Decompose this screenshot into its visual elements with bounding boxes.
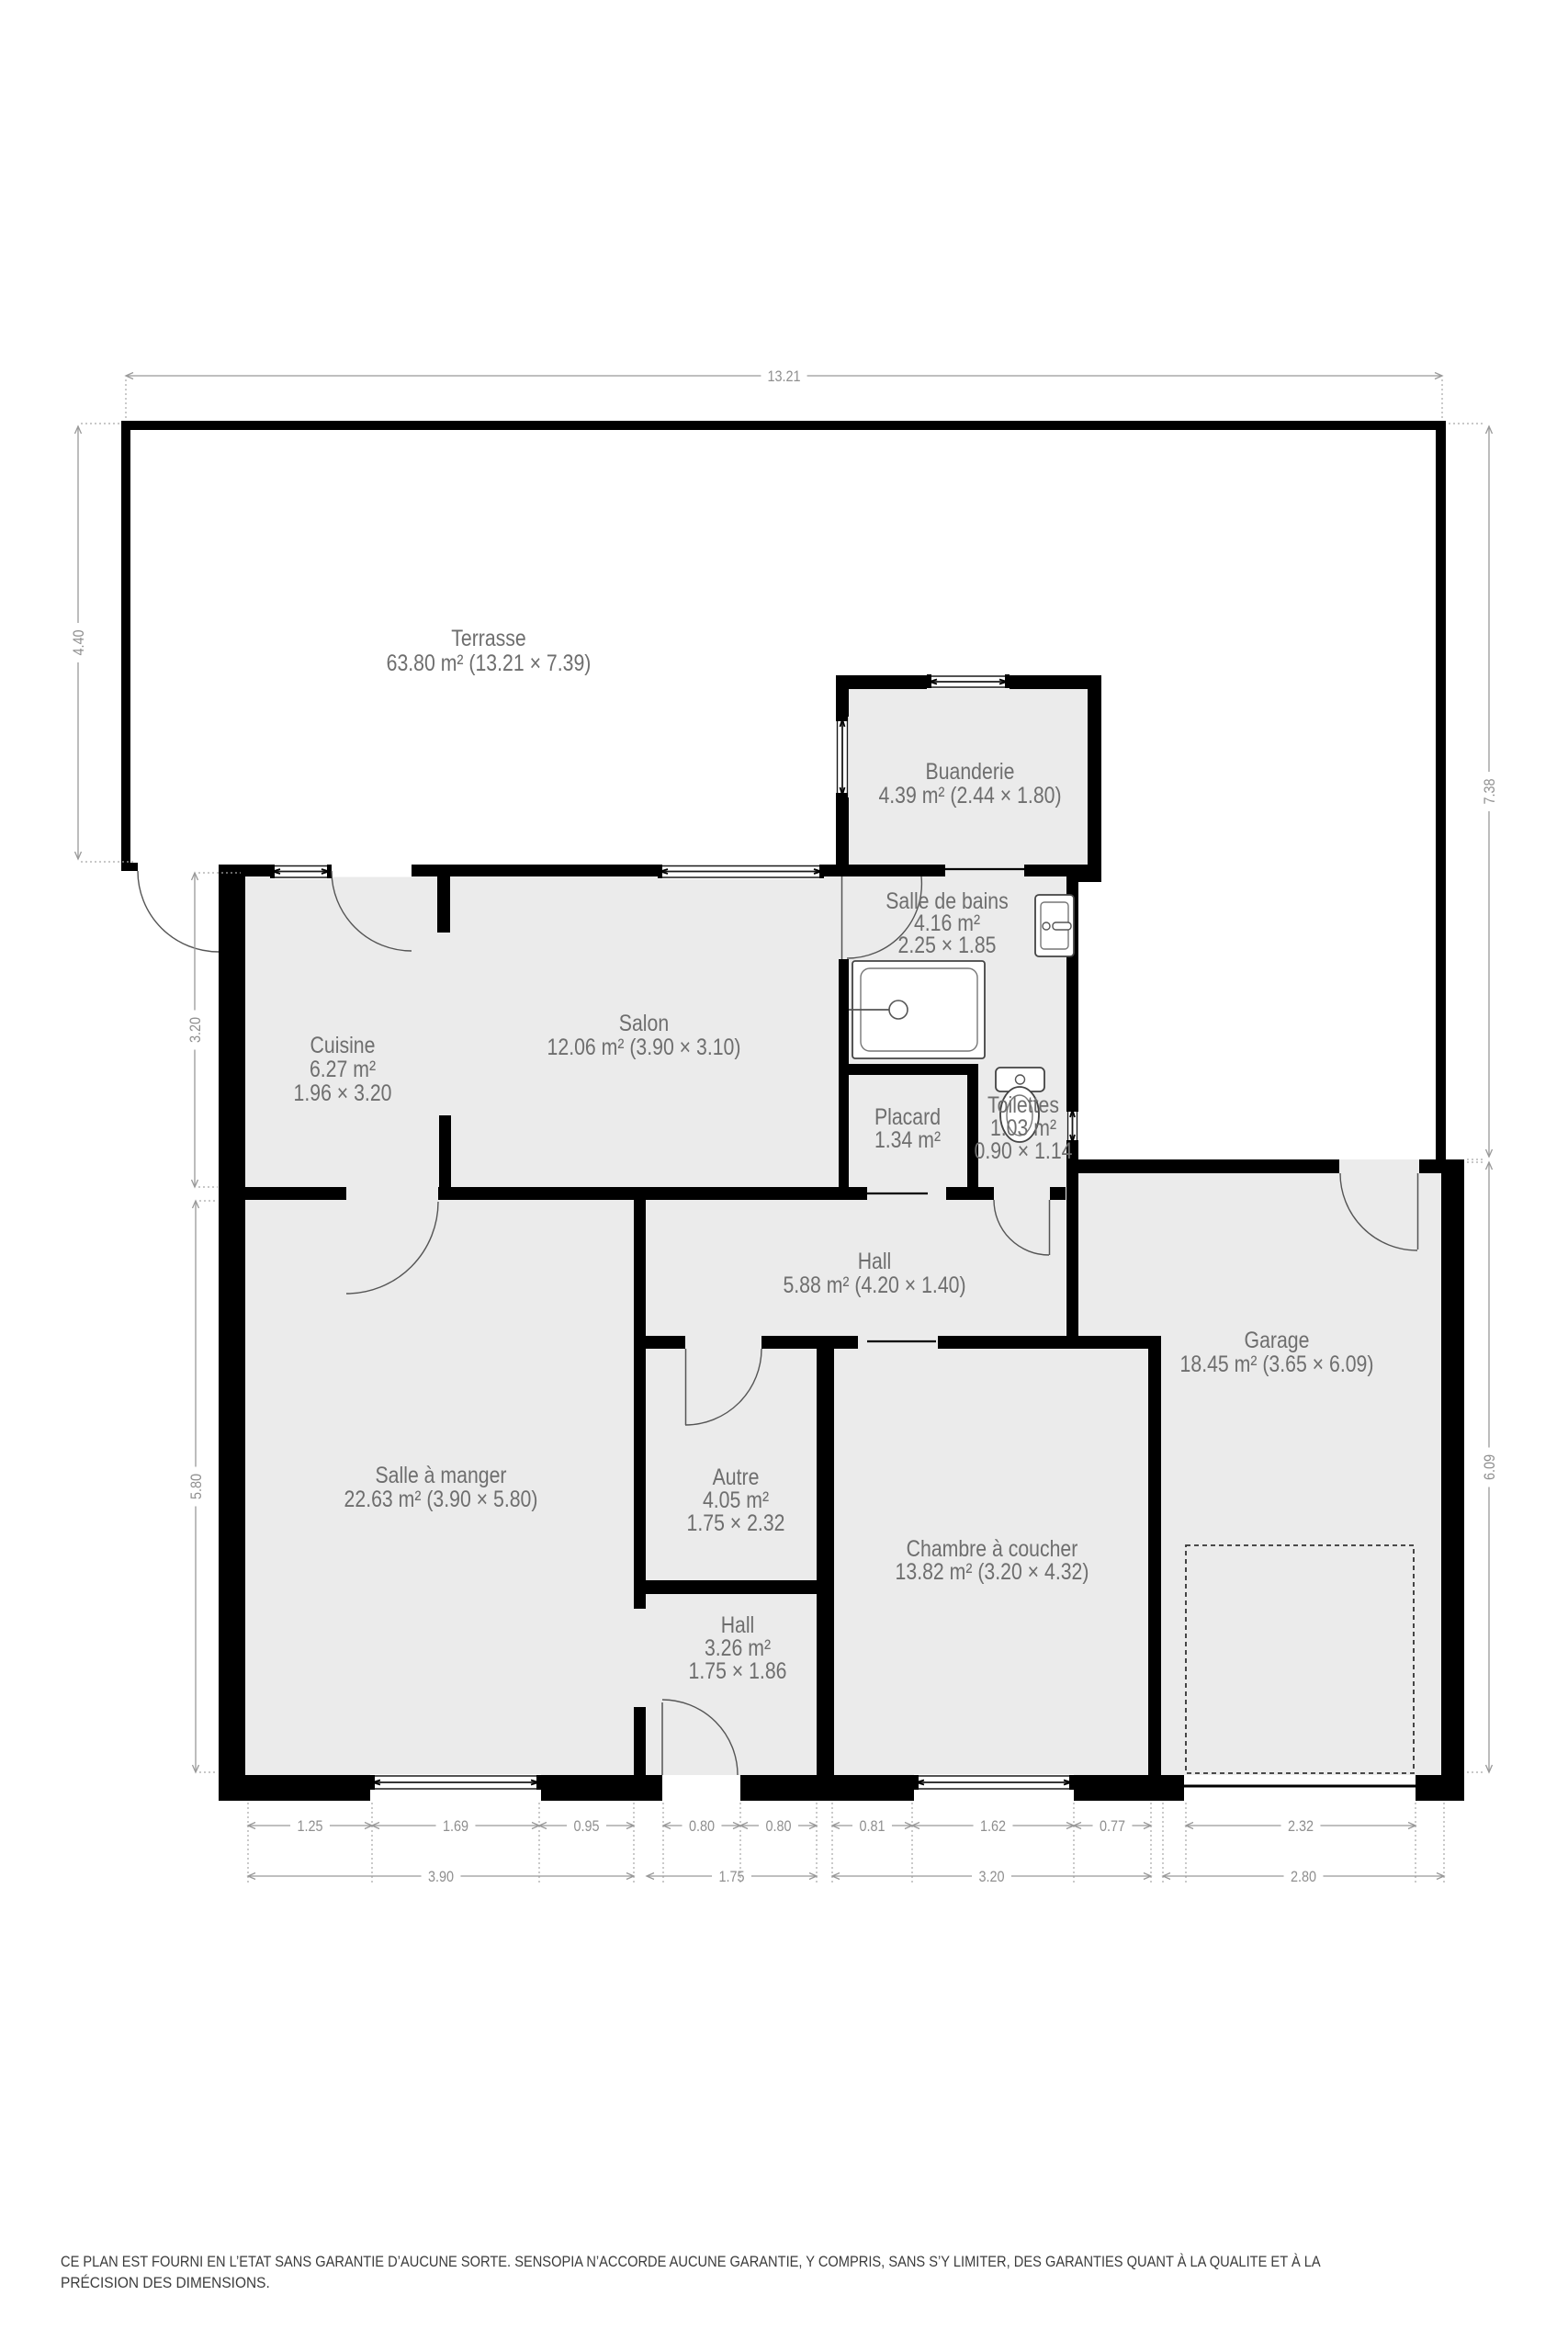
svg-text:Cuisine: Cuisine bbox=[310, 1033, 376, 1058]
svg-text:1.62: 1.62 bbox=[980, 1817, 1006, 1835]
svg-text:4.40: 4.40 bbox=[70, 629, 87, 655]
svg-text:2.80: 2.80 bbox=[1291, 1868, 1316, 1885]
svg-text:0.77: 0.77 bbox=[1100, 1817, 1125, 1835]
svg-text:5.80: 5.80 bbox=[187, 1474, 205, 1499]
svg-text:0.80: 0.80 bbox=[689, 1817, 715, 1835]
svg-text:Chambre à coucher: Chambre à coucher bbox=[907, 1536, 1078, 1562]
svg-text:13.82 m² (3.20 × 4.32): 13.82 m² (3.20 × 4.32) bbox=[896, 1559, 1089, 1585]
svg-text:0.81: 0.81 bbox=[859, 1817, 885, 1835]
svg-text:PRÉCISION DES DIMENSIONS.: PRÉCISION DES DIMENSIONS. bbox=[61, 2274, 270, 2291]
svg-text:7.38: 7.38 bbox=[1481, 778, 1498, 804]
svg-text:1.96 × 3.20: 1.96 × 3.20 bbox=[294, 1080, 392, 1106]
svg-text:12.06 m² (3.90 × 3.10): 12.06 m² (3.90 × 3.10) bbox=[547, 1035, 741, 1060]
svg-text:0.80: 0.80 bbox=[765, 1817, 791, 1835]
svg-text:3.90: 3.90 bbox=[428, 1868, 454, 1885]
svg-text:1.34 m²: 1.34 m² bbox=[874, 1127, 941, 1153]
svg-text:3.26 m²: 3.26 m² bbox=[705, 1635, 771, 1661]
svg-text:Hall: Hall bbox=[858, 1249, 892, 1274]
svg-text:1.75: 1.75 bbox=[718, 1868, 744, 1885]
svg-text:Buanderie: Buanderie bbox=[926, 759, 1015, 785]
svg-text:Salle à manger: Salle à manger bbox=[376, 1463, 507, 1488]
svg-text:1.75 × 2.32: 1.75 × 2.32 bbox=[687, 1510, 785, 1536]
svg-text:Terrasse: Terrasse bbox=[451, 626, 526, 651]
svg-text:3.20: 3.20 bbox=[978, 1868, 1004, 1885]
svg-text:2.25 × 1.85: 2.25 × 1.85 bbox=[898, 933, 997, 958]
svg-text:0.90 × 1.14: 0.90 × 1.14 bbox=[975, 1138, 1073, 1164]
svg-text:18.45 m² (3.65 × 6.09): 18.45 m² (3.65 × 6.09) bbox=[1180, 1351, 1374, 1377]
svg-text:5.88 m² (4.20 × 1.40): 5.88 m² (4.20 × 1.40) bbox=[783, 1272, 965, 1298]
svg-text:4.05 m²: 4.05 m² bbox=[703, 1487, 769, 1513]
svg-text:2.32: 2.32 bbox=[1288, 1817, 1314, 1835]
svg-text:4.39 m² (2.44 × 1.80): 4.39 m² (2.44 × 1.80) bbox=[878, 783, 1061, 808]
svg-text:Garage: Garage bbox=[1245, 1328, 1310, 1353]
svg-text:1.75 × 1.86: 1.75 × 1.86 bbox=[689, 1658, 787, 1684]
svg-text:13.21: 13.21 bbox=[767, 367, 800, 385]
svg-text:0.95: 0.95 bbox=[573, 1817, 599, 1835]
svg-text:1.69: 1.69 bbox=[443, 1817, 468, 1835]
svg-text:22.63 m² (3.90 × 5.80): 22.63 m² (3.90 × 5.80) bbox=[344, 1487, 538, 1512]
svg-text:Autre: Autre bbox=[713, 1464, 760, 1490]
svg-text:6.27 m²: 6.27 m² bbox=[310, 1057, 376, 1082]
svg-text:3.20: 3.20 bbox=[186, 1017, 204, 1043]
svg-text:Placard: Placard bbox=[874, 1104, 941, 1130]
svg-text:1.03 m²: 1.03 m² bbox=[990, 1115, 1056, 1141]
svg-text:Hall: Hall bbox=[721, 1612, 755, 1638]
svg-text:Salon: Salon bbox=[619, 1011, 669, 1036]
svg-text:CE PLAN EST FOURNI EN L’ETAT S: CE PLAN EST FOURNI EN L’ETAT SANS GARANT… bbox=[61, 2253, 1321, 2270]
svg-text:6.09: 6.09 bbox=[1481, 1454, 1498, 1480]
svg-text:1.25: 1.25 bbox=[297, 1817, 322, 1835]
svg-text:Toilettes: Toilettes bbox=[987, 1092, 1059, 1118]
svg-text:63.80 m² (13.21 × 7.39): 63.80 m² (13.21 × 7.39) bbox=[387, 650, 592, 676]
